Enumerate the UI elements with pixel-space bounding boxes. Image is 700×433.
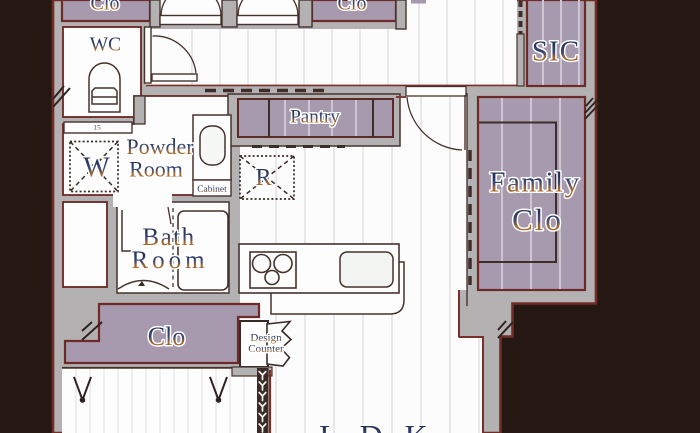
svg-text:L D K: L D K: [319, 418, 435, 433]
svg-text:Clo: Clo: [512, 202, 563, 237]
svg-text:Pantry: Pantry: [290, 107, 340, 128]
svg-text:Family: Family: [489, 167, 580, 199]
svg-text:Counter: Counter: [248, 343, 284, 355]
svg-text:Powder: Powder: [126, 134, 194, 159]
svg-text:Clo: Clo: [91, 0, 120, 15]
svg-text:SIC: SIC: [532, 36, 580, 68]
svg-text:W: W: [83, 153, 110, 184]
svg-text:Cabinet: Cabinet: [197, 185, 227, 195]
svg-text:Clo: Clo: [338, 0, 367, 15]
svg-text:Room: Room: [131, 247, 208, 274]
svg-text:R: R: [255, 165, 271, 191]
svg-text:15: 15: [93, 123, 101, 132]
svg-text:Room: Room: [129, 157, 183, 182]
svg-text:WC: WC: [90, 35, 121, 56]
svg-text:Clo: Clo: [148, 322, 186, 351]
